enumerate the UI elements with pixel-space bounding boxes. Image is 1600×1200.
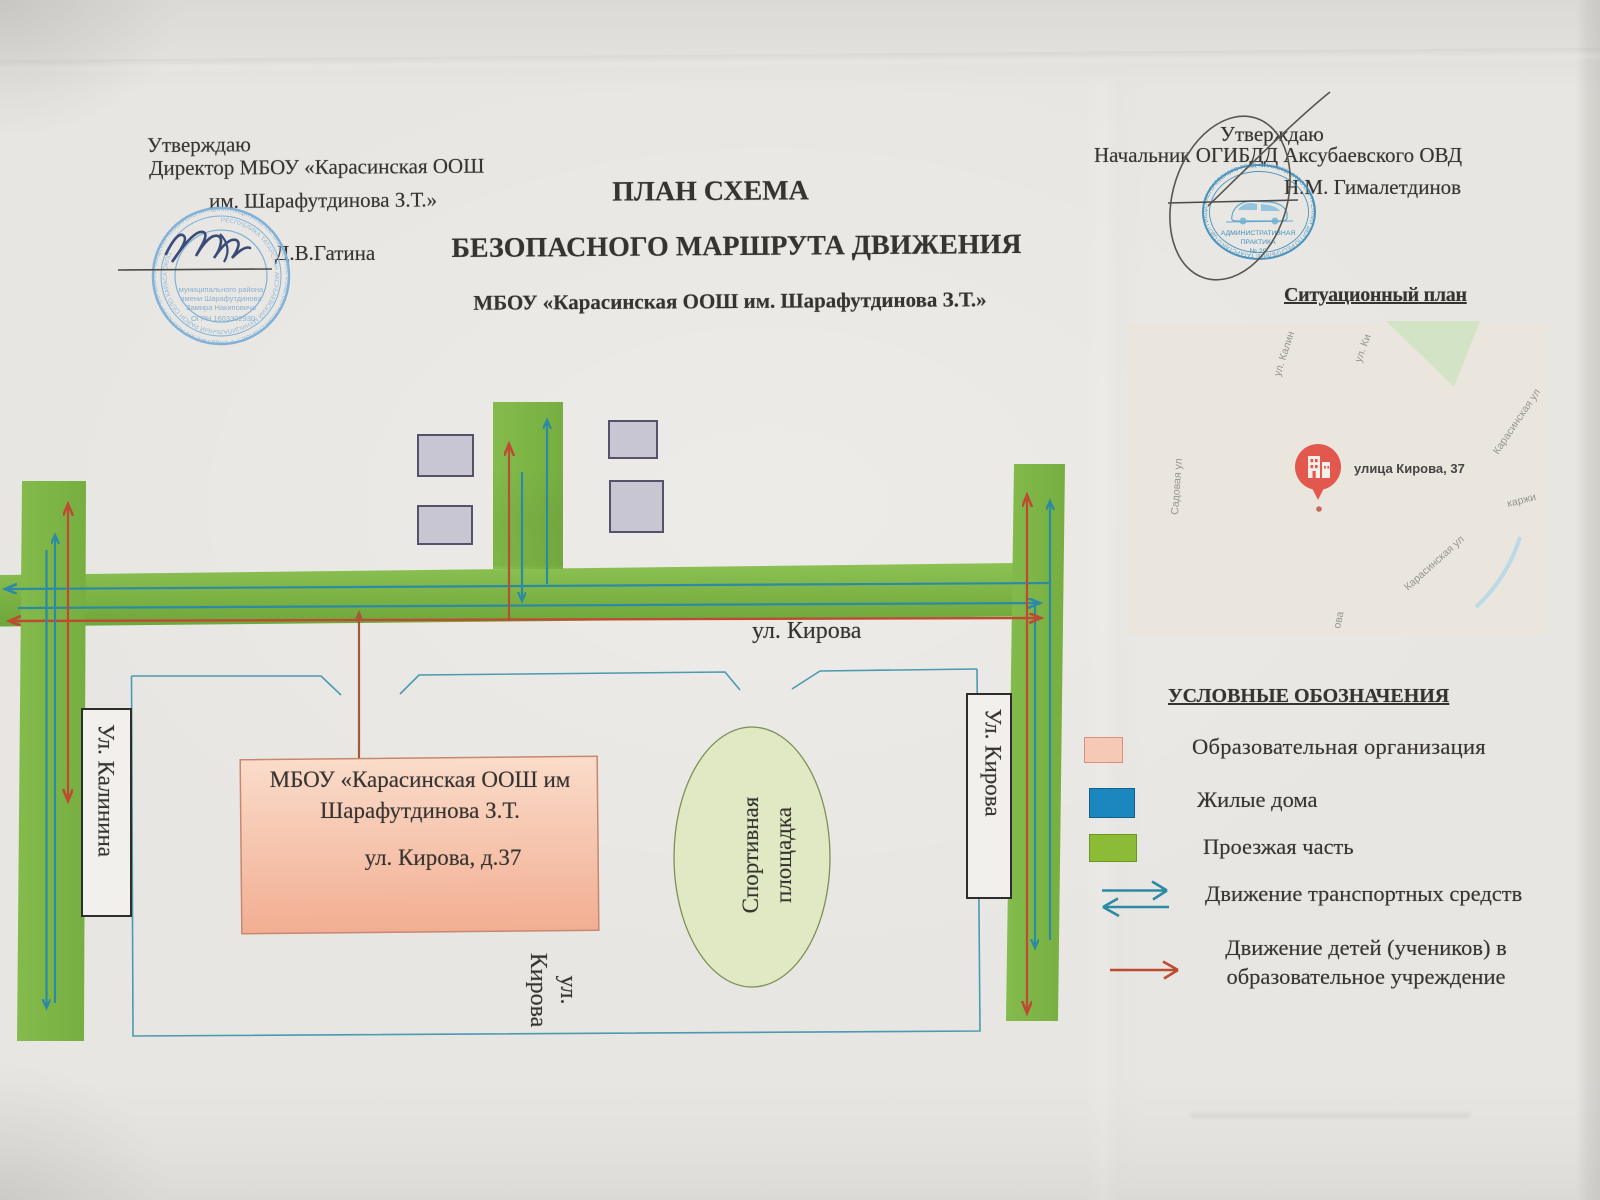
- svg-text:имени Шарафутдинова: имени Шарафутдинова: [180, 294, 262, 303]
- svg-text:Замира Накиповича: Замира Накиповича: [186, 303, 257, 312]
- svg-text:ОГРН 1603302930: ОГРН 1603302930: [191, 314, 255, 323]
- svg-text:муниципального района: муниципального района: [179, 285, 264, 294]
- svg-text:улица Кирова, 37: улица Кирова, 37: [1354, 461, 1465, 476]
- svg-text:АДМИНИСТРАТИВНАЯ: АДМИНИСТРАТИВНАЯ: [1221, 230, 1296, 237]
- svg-text:МИНИСТЕРСТВО ВНУТРЕННИХ ДЕЛ ПО: МИНИСТЕРСТВО ВНУТРЕННИХ ДЕЛ ПО РЕСПУБЛИК…: [1130, 20, 1315, 258]
